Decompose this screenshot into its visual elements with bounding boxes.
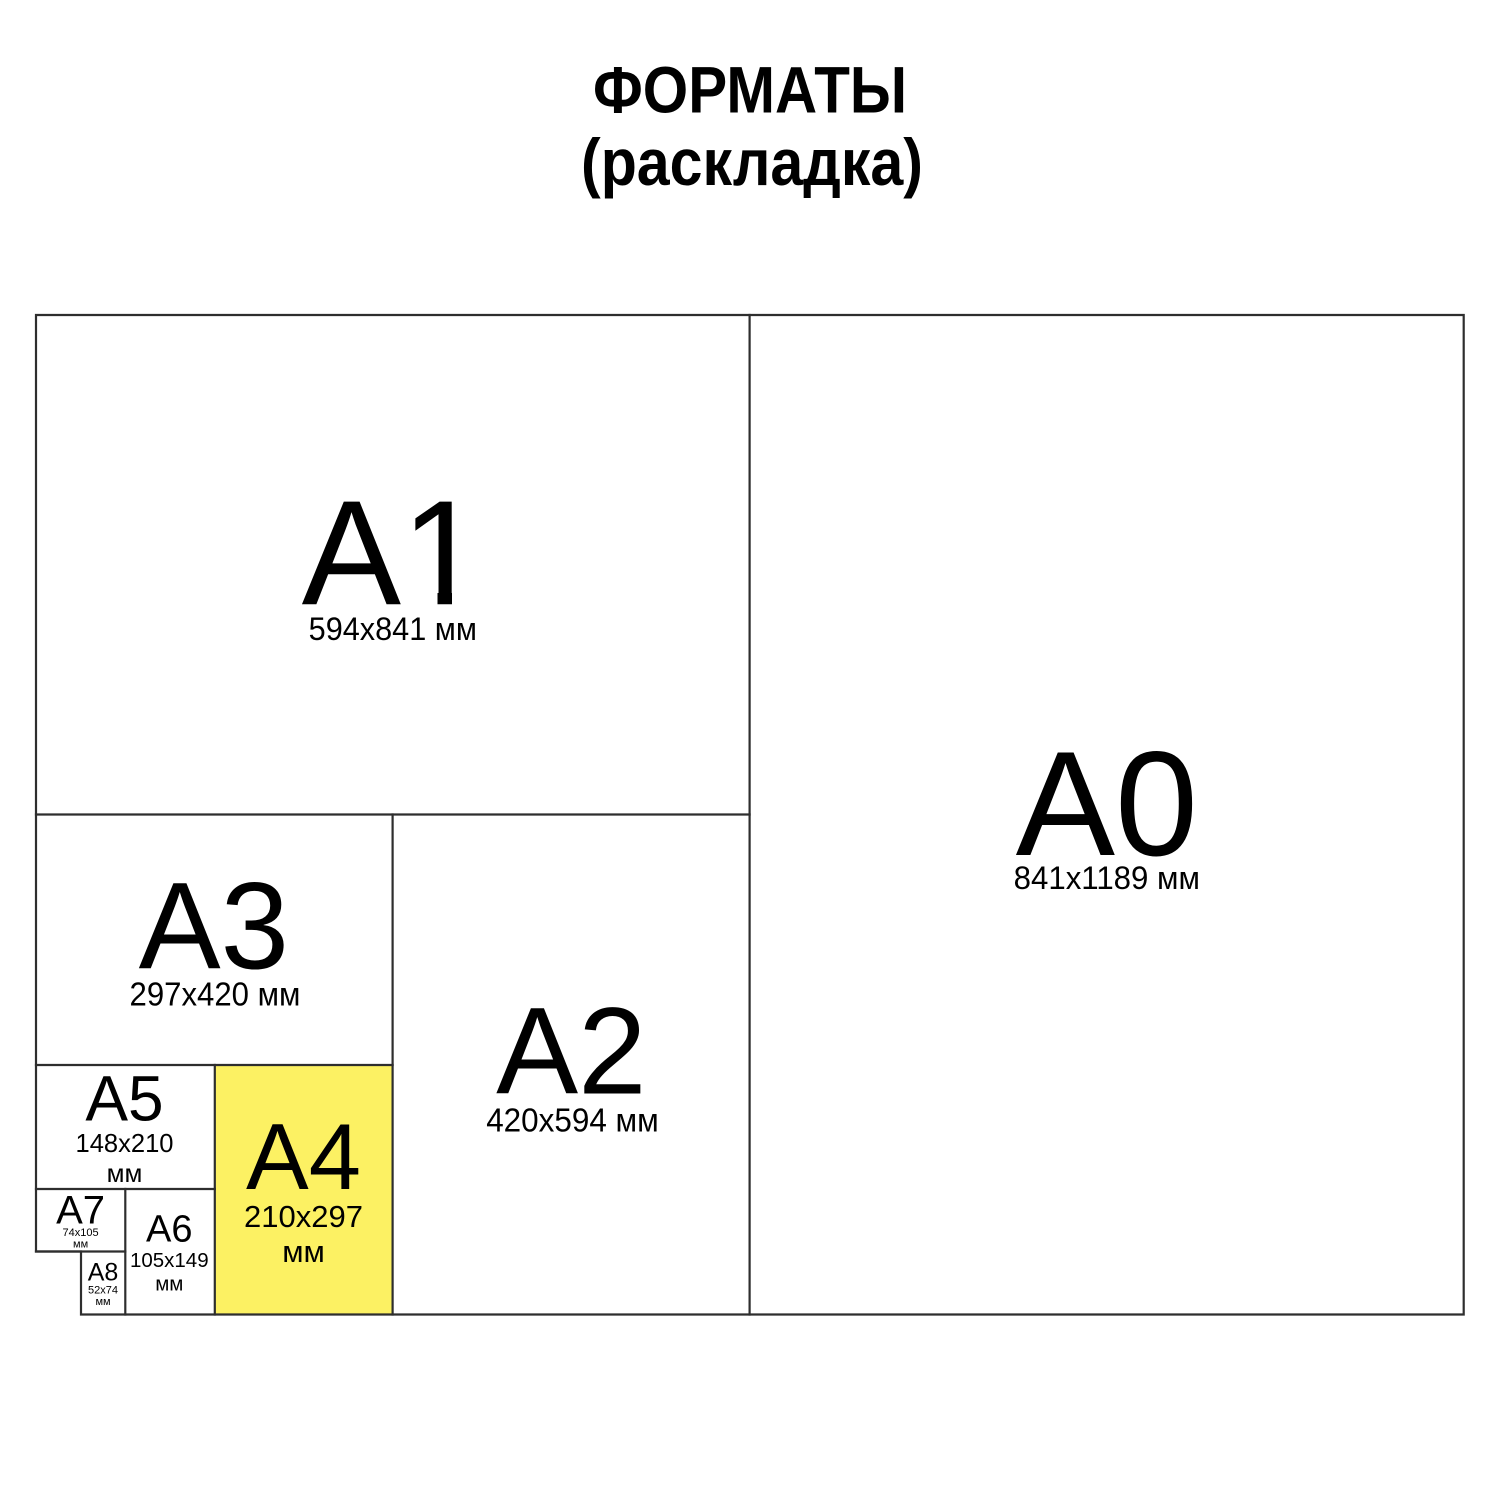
- svg-text:210х297: 210х297: [244, 1199, 363, 1234]
- svg-text:(раскладка): (раскладка): [581, 125, 923, 199]
- svg-text:ФОРМАТЫ: ФОРМАТЫ: [593, 52, 907, 126]
- svg-text:мм: мм: [73, 1239, 88, 1251]
- svg-text:А2: А2: [496, 983, 646, 1120]
- svg-text:А4: А4: [246, 1104, 361, 1209]
- svg-text:А7: А7: [56, 1189, 105, 1233]
- svg-text:А5: А5: [85, 1063, 163, 1135]
- svg-text:А8: А8: [88, 1259, 119, 1287]
- svg-text:841х1189 мм: 841х1189 мм: [1014, 860, 1200, 896]
- svg-text:А6: А6: [146, 1208, 192, 1250]
- svg-text:мм: мм: [107, 1158, 143, 1188]
- svg-text:74х105: 74х105: [63, 1227, 99, 1239]
- svg-text:мм: мм: [282, 1234, 325, 1269]
- svg-text:148х210: 148х210: [76, 1128, 174, 1158]
- svg-text:мм: мм: [155, 1273, 183, 1296]
- svg-text:105х149: 105х149: [130, 1249, 209, 1272]
- svg-text:52х74: 52х74: [88, 1284, 118, 1296]
- svg-text:мм: мм: [95, 1296, 110, 1308]
- svg-text:420х594 мм: 420х594 мм: [486, 1102, 659, 1139]
- svg-text:594х841 мм: 594х841 мм: [309, 611, 477, 647]
- svg-text:297х420 мм: 297х420 мм: [130, 975, 301, 1012]
